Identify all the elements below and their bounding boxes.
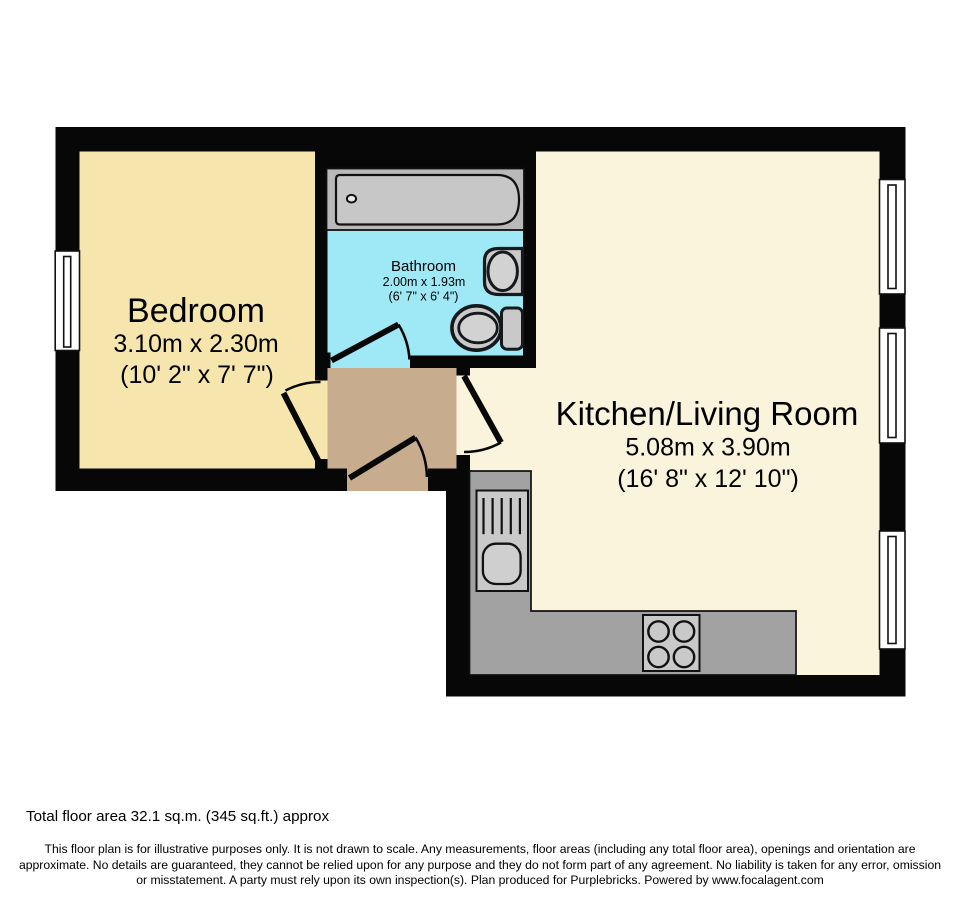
svg-text:5.08m x 3.90m: 5.08m x 3.90m — [625, 434, 790, 462]
svg-text:or misstatement. A party must: or misstatement. A party must rely upon … — [136, 873, 824, 887]
svg-text:(10' 2" x 7' 7"): (10' 2" x 7' 7") — [120, 361, 274, 389]
svg-text:approximate. No details are gu: approximate. No details are guaranteed, … — [19, 858, 941, 872]
svg-text:(6' 7" x 6' 4"): (6' 7" x 6' 4") — [389, 290, 459, 304]
svg-text:Kitchen/Living Room: Kitchen/Living Room — [556, 395, 859, 432]
svg-text:3.10m x 2.30m: 3.10m x 2.30m — [113, 330, 278, 358]
svg-text:This floor plan is for illustr: This floor plan is for illustrative purp… — [45, 842, 916, 856]
svg-text:Bathroom: Bathroom — [391, 258, 456, 275]
svg-text:2.00m x 1.93m: 2.00m x 1.93m — [383, 275, 466, 289]
svg-text:Total floor area 32.1 sq.m. (3: Total floor area 32.1 sq.m. (345 sq.ft.)… — [26, 808, 329, 825]
svg-text:(16' 8" x 12' 10"): (16' 8" x 12' 10") — [617, 465, 799, 493]
svg-text:Bedroom: Bedroom — [127, 292, 265, 330]
